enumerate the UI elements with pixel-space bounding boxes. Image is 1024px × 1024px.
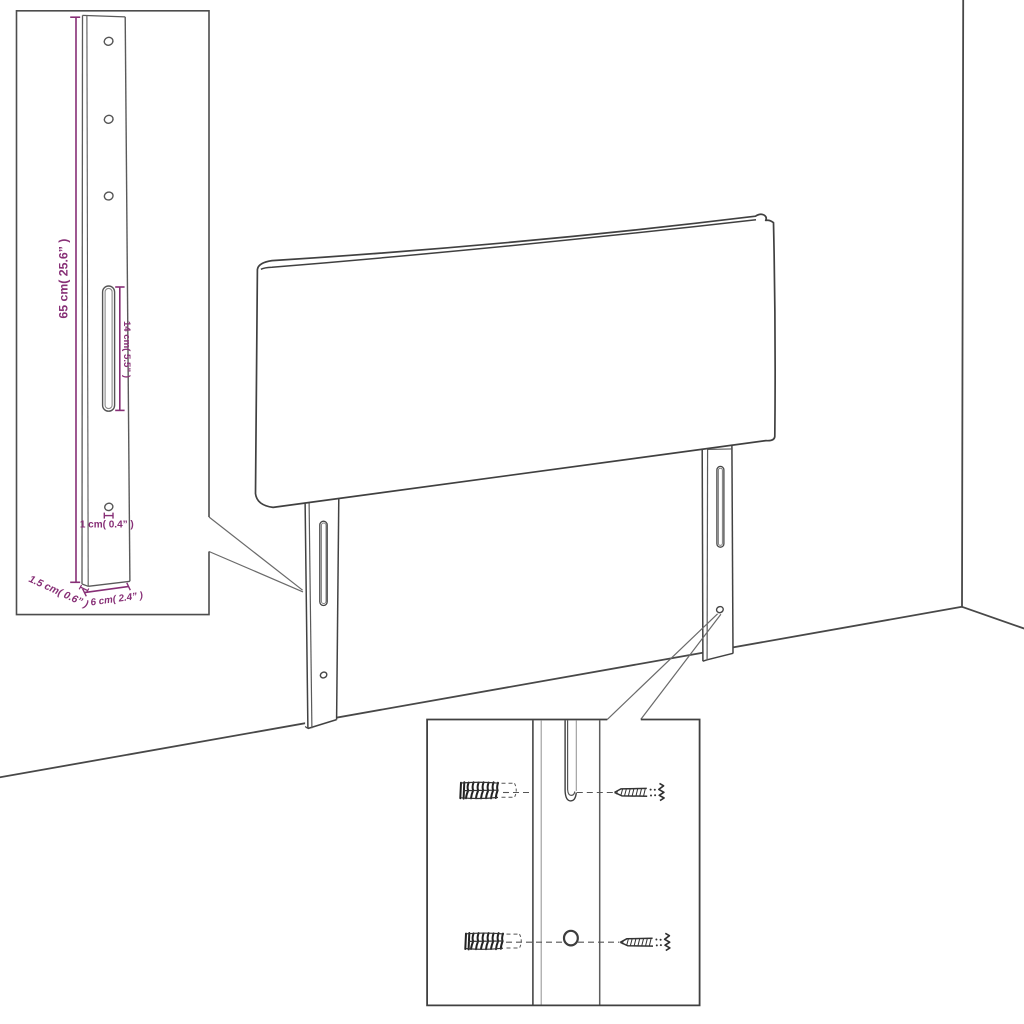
- svg-text:1 cm( 0.4” ): 1 cm( 0.4” ): [80, 519, 134, 530]
- svg-text:14 cm( 5.5” ): 14 cm( 5.5” ): [121, 321, 132, 378]
- svg-text:65 cm( 25.6” ): 65 cm( 25.6” ): [57, 239, 71, 319]
